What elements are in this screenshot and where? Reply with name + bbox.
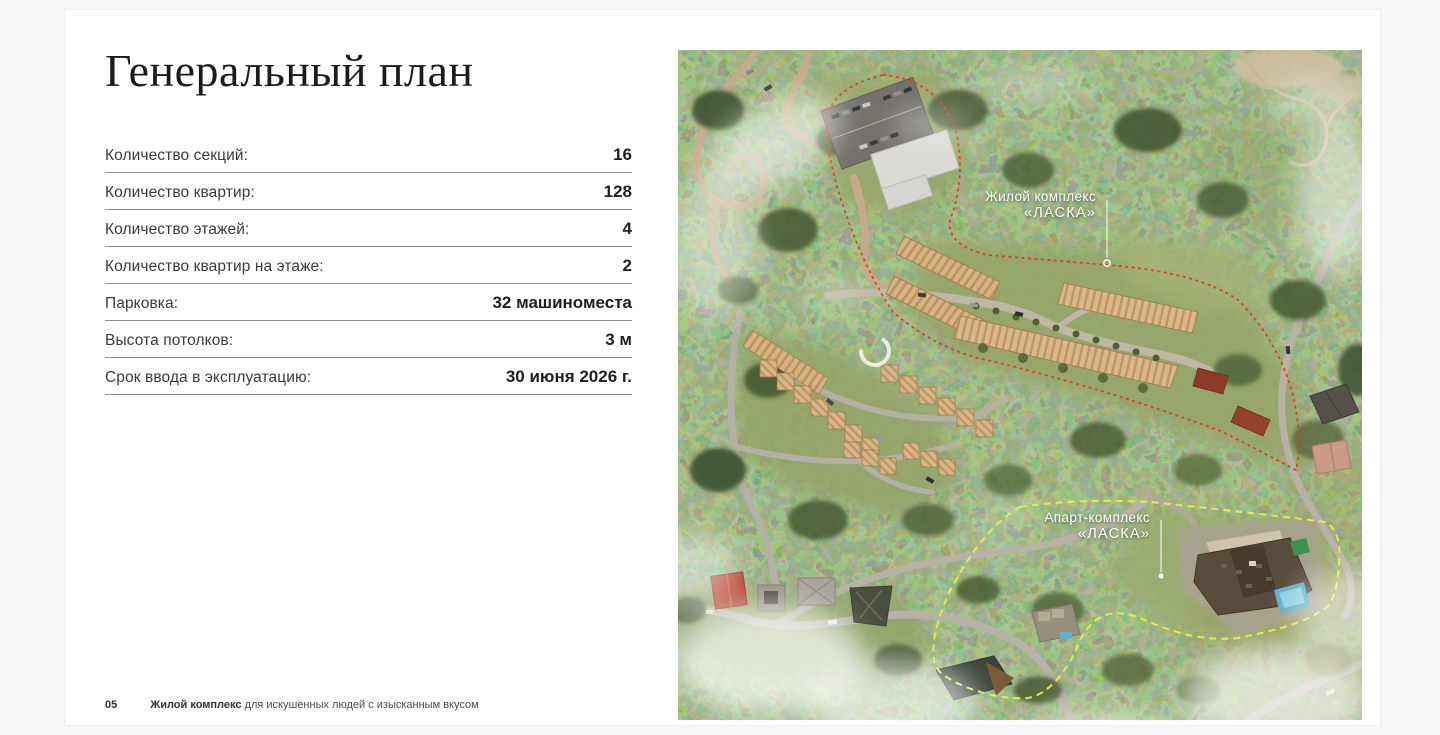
spec-label: Количество квартир на этаже: bbox=[105, 258, 324, 276]
spec-value: 32 машиноместа bbox=[492, 293, 632, 313]
apart-label-line2: «ЛАСКА» bbox=[1044, 526, 1150, 543]
spec-value: 128 bbox=[604, 182, 632, 202]
residential-label-line2: «ЛАСКА» bbox=[985, 205, 1096, 222]
table-row: Высота потолков: 3 м bbox=[105, 321, 632, 358]
spec-value: 2 bbox=[623, 256, 632, 276]
spec-value: 3 м bbox=[605, 330, 632, 350]
brand-tagline: Жилой комплекс для искушенных людей с из… bbox=[150, 699, 478, 711]
table-row: Количество квартир на этаже: 2 bbox=[105, 247, 632, 284]
table-row: Количество секций: 16 bbox=[105, 136, 632, 173]
table-row: Количество этажей: 4 bbox=[105, 210, 632, 247]
map-label-apart: Апарт-комплекс «ЛАСКА» bbox=[1044, 509, 1150, 543]
spec-value: 16 bbox=[613, 145, 632, 165]
brand-tagline-bold: Жилой комплекс bbox=[150, 699, 241, 711]
page-title: Генеральный план bbox=[105, 44, 474, 98]
spec-value: 4 bbox=[623, 219, 632, 239]
masterplan-illustration bbox=[678, 50, 1362, 720]
masterplan-render: Жилой комплекс «ЛАСКА» Апарт-комплекс «Л… bbox=[678, 50, 1362, 720]
table-row: Количество квартир: 128 bbox=[105, 173, 632, 210]
slide-footer: 05Жилой комплекс для искушенных людей с … bbox=[105, 699, 479, 711]
table-row: Срок ввода в эксплуатацию: 30 июня 2026 … bbox=[105, 358, 632, 395]
residential-label-line1: Жилой комплекс bbox=[985, 188, 1096, 205]
table-row: Парковка: 32 машиноместа bbox=[105, 284, 632, 321]
screenshot-root: Генеральный план Количество секций: 16 К… bbox=[0, 0, 1440, 735]
apart-label-line1: Апарт-комплекс bbox=[1044, 509, 1150, 526]
specs-table: Количество секций: 16 Количество квартир… bbox=[105, 136, 632, 395]
map-label-residential: Жилой комплекс «ЛАСКА» bbox=[985, 188, 1096, 222]
spec-label: Количество секций: bbox=[105, 147, 248, 165]
slide: Генеральный план Количество секций: 16 К… bbox=[65, 10, 1380, 725]
page-number: 05 bbox=[105, 699, 117, 711]
spec-label: Высота потолков: bbox=[105, 332, 233, 350]
brand-tagline-rest: для искушенных людей с изысканным вкусом bbox=[245, 699, 479, 711]
spec-label: Парковка: bbox=[105, 295, 178, 313]
spec-label: Количество квартир: bbox=[105, 184, 255, 202]
spec-value: 30 июня 2026 г. bbox=[506, 367, 632, 387]
spec-label: Количество этажей: bbox=[105, 221, 249, 239]
spec-label: Срок ввода в эксплуатацию: bbox=[105, 369, 311, 387]
